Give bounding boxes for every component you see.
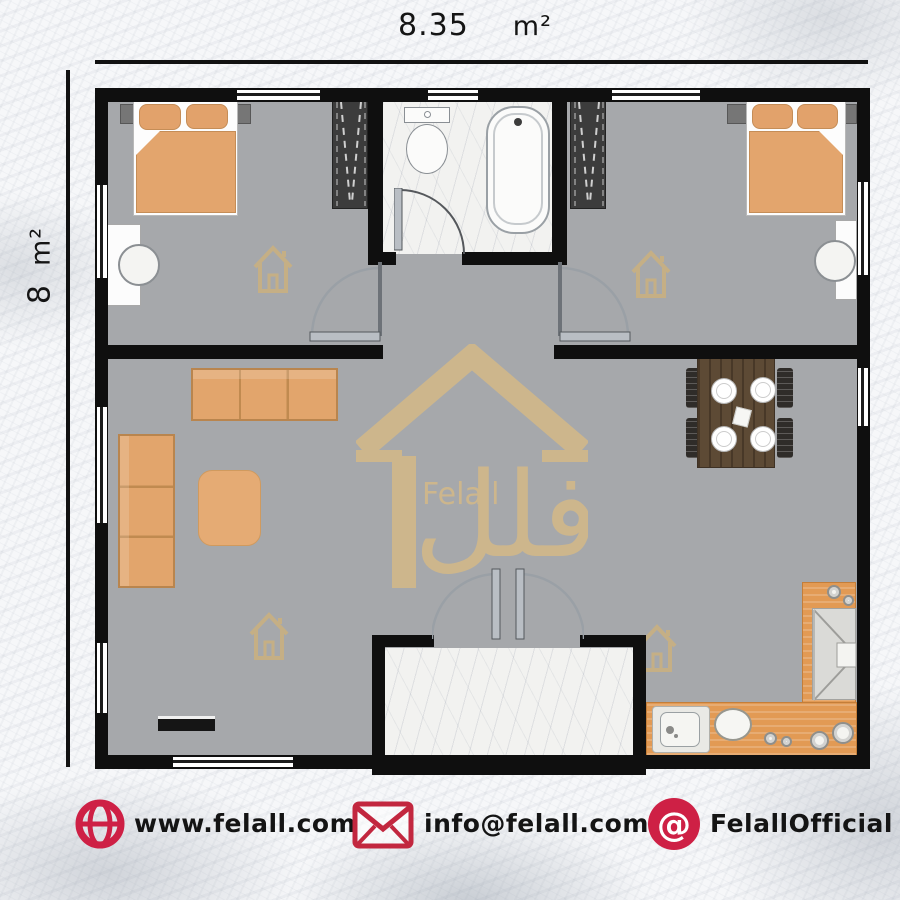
- wardrobe-doors-icon: [333, 98, 369, 210]
- house-logo-icon: فلل Felall: [356, 344, 588, 596]
- refrigerator-top-icon: [813, 609, 857, 701]
- desk-chair: [118, 244, 160, 286]
- house-logo-icon: [252, 243, 294, 295]
- window: [97, 643, 107, 713]
- svg-text:@: @: [657, 805, 691, 845]
- wall-middle-right: [554, 345, 870, 359]
- height-unit: m²: [26, 227, 57, 266]
- window: [858, 368, 868, 426]
- plate: [750, 426, 776, 452]
- cooktop-item: [843, 595, 854, 606]
- wall-middle-left: [95, 345, 383, 359]
- height-dimension-line: [66, 70, 70, 767]
- duvet-fold: [136, 131, 160, 155]
- width-value: 8.35: [398, 8, 469, 43]
- wardrobe-doors-icon: [571, 98, 607, 210]
- wardrobe: [332, 97, 368, 209]
- window: [428, 90, 478, 100]
- pillow: [797, 104, 838, 129]
- window: [97, 407, 107, 523]
- pillow: [139, 104, 181, 130]
- sofa: [118, 434, 175, 588]
- window: [858, 182, 868, 275]
- width-unit: m²: [513, 11, 552, 42]
- wall-porch-top: [372, 635, 434, 647]
- stove-burner: [832, 722, 854, 744]
- serving-platter: [714, 708, 752, 741]
- wall-bathroom-right: [552, 102, 567, 265]
- wardrobe: [570, 97, 606, 209]
- desk-chair: [814, 240, 856, 282]
- stove-burner: [810, 731, 829, 750]
- floorplan-poster: { "dimensions": { "width": { "value": "8…: [0, 0, 900, 900]
- watermark-latin-text: Felall: [422, 477, 499, 512]
- entrance-porch-floor: [385, 648, 633, 762]
- wall-porch-right: [633, 635, 646, 775]
- envelope-icon: [352, 801, 414, 849]
- window: [97, 185, 107, 278]
- house-logo-icon: [630, 248, 672, 300]
- door-swing-bedroom-right: [554, 262, 634, 344]
- dining-chair: [777, 418, 793, 458]
- height-dimension-label: 8 m²: [23, 206, 58, 326]
- wall-bathroom-left: [368, 102, 383, 265]
- dining-chair: [777, 368, 793, 408]
- height-value: 8: [23, 284, 58, 304]
- refrigerator: [812, 608, 856, 700]
- pillow: [186, 104, 228, 129]
- bathtub-basin: [493, 113, 543, 225]
- tv-stand: [158, 716, 215, 731]
- window: [612, 90, 700, 100]
- wall-exterior-top: [95, 88, 870, 102]
- website-label: www.felall.com: [134, 809, 356, 838]
- toilet-bowl: [406, 124, 448, 174]
- sofa: [191, 368, 338, 421]
- duvet-fold: [819, 131, 843, 155]
- window: [237, 90, 320, 100]
- globe-icon: [74, 798, 126, 850]
- window: [173, 757, 293, 767]
- width-dimension-line: [95, 60, 868, 64]
- pillow: [752, 104, 793, 129]
- door-swing-bathroom: [394, 188, 470, 256]
- plate: [711, 426, 737, 452]
- width-dimension-label: 8.35 m²: [398, 8, 552, 43]
- wall-porch-bottom: [372, 762, 646, 775]
- stove-burner: [764, 732, 777, 745]
- social-label: FelallOfficial: [710, 809, 893, 838]
- plate: [711, 378, 737, 404]
- at-badge-icon: @: [646, 796, 702, 852]
- stove-burner: [781, 736, 792, 747]
- email-label: info@felall.com: [424, 809, 649, 838]
- bathtub-faucet: [514, 118, 522, 126]
- house-logo-icon: [248, 610, 290, 662]
- coffee-table: [198, 470, 261, 546]
- plate: [750, 377, 776, 403]
- wall-porch-top: [580, 635, 646, 647]
- sink-faucet: [666, 726, 674, 734]
- door-swing-bedroom-left: [306, 262, 386, 344]
- door-swing-entrance-double: [432, 563, 584, 641]
- wall-bathroom-bottom: [462, 252, 567, 265]
- toilet-flush-button: [424, 111, 431, 118]
- cooktop-item: [827, 585, 841, 599]
- wall-porch-left: [372, 635, 385, 775]
